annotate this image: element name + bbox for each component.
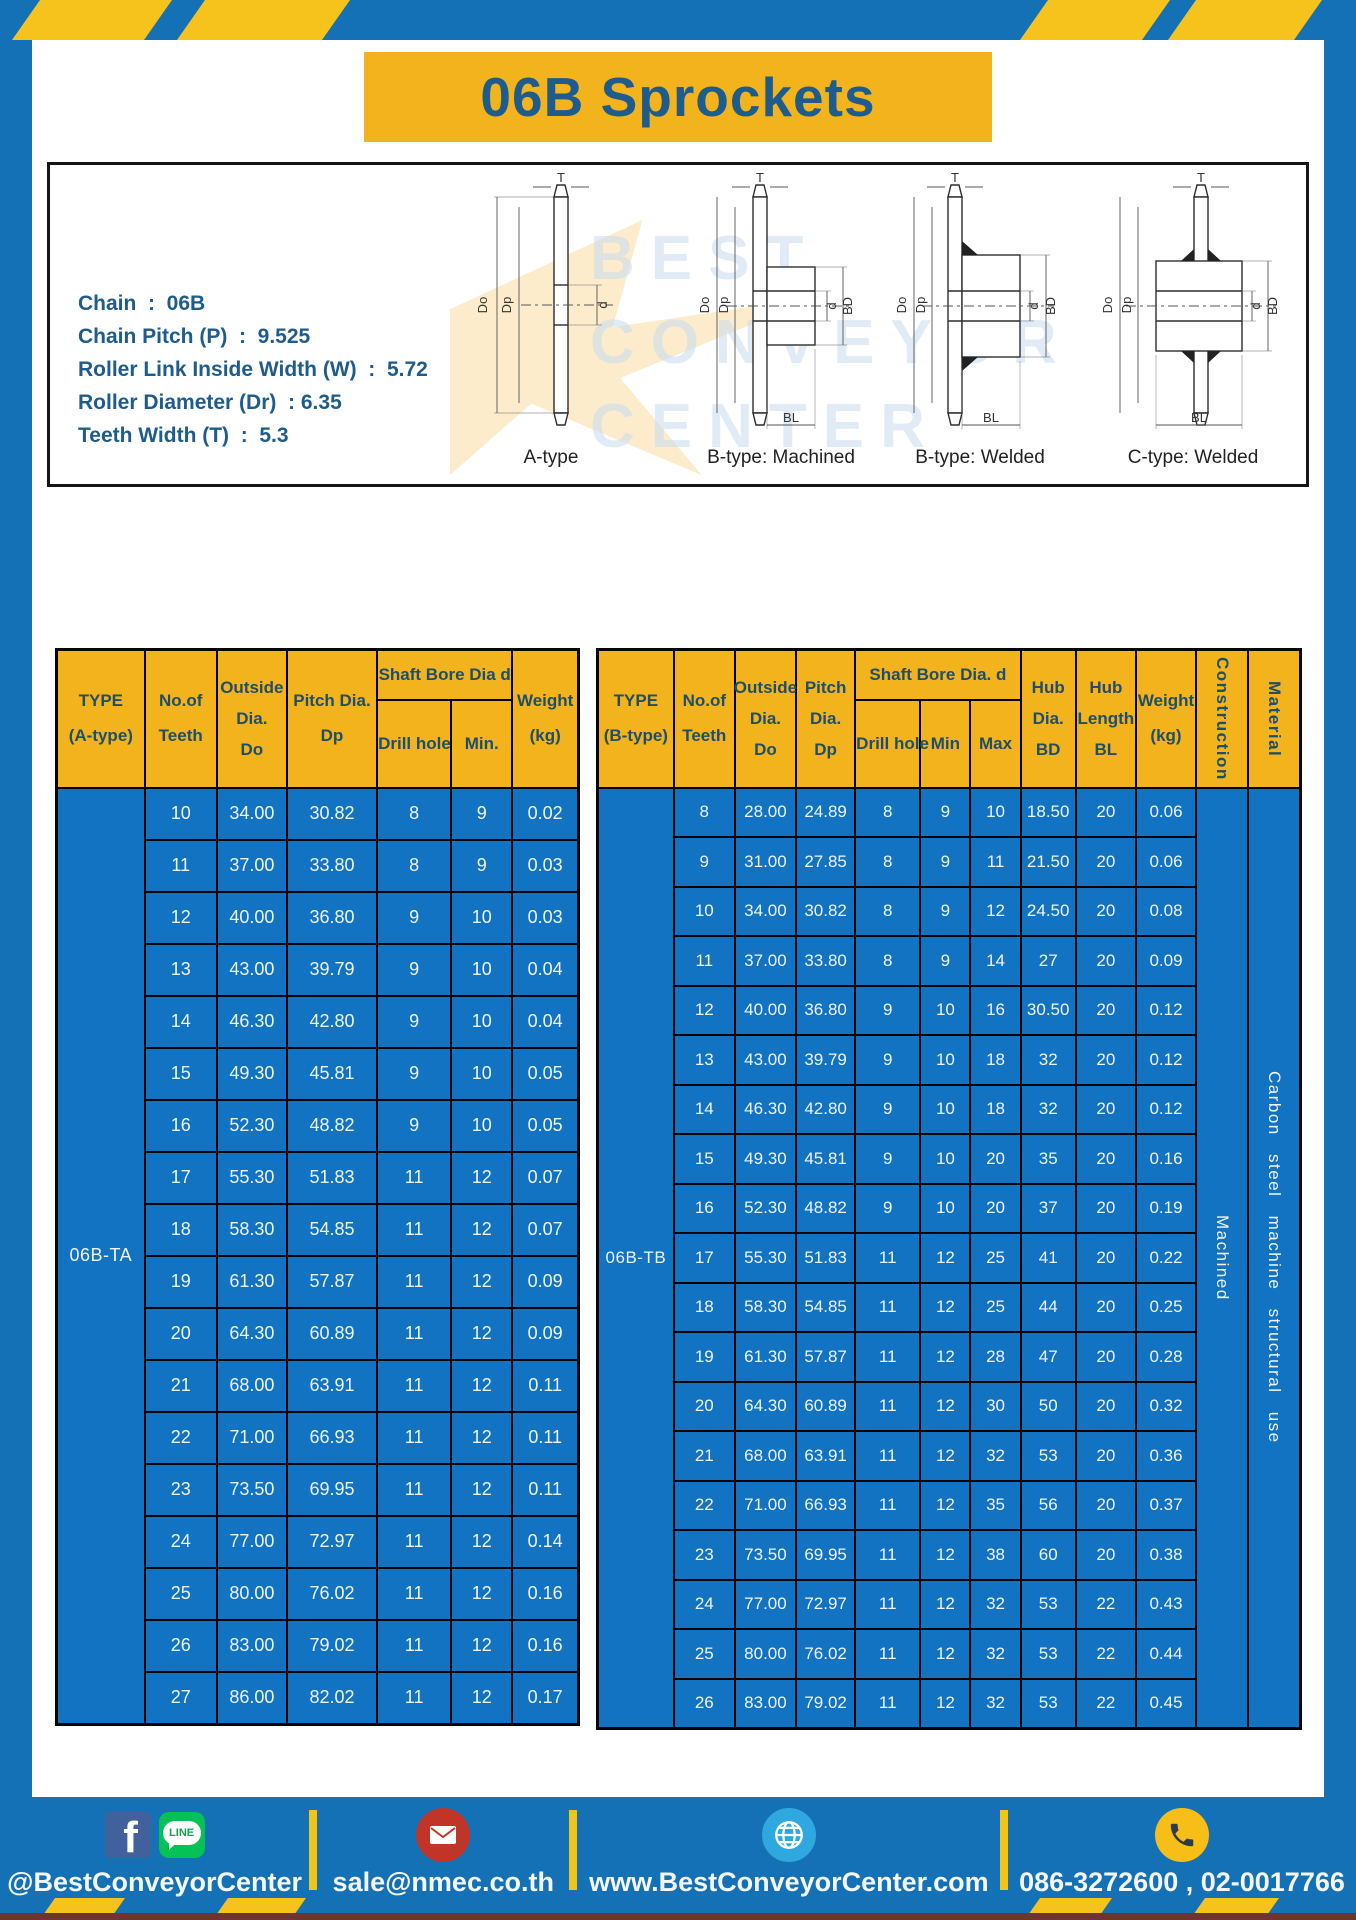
data-cell: 66.93 [287,1412,377,1464]
data-cell: 9 [674,837,735,887]
data-cell: 11 [377,1308,451,1360]
hazard-stripe [177,0,350,40]
data-cell: 9 [377,892,451,944]
data-cell: 10 [451,944,512,996]
table-row: 1961.3057.8711122847200.28 [598,1332,1301,1382]
data-cell: 43.00 [735,1035,796,1085]
table-row: 06B-TB828.0024.89891018.50200.06Machined… [598,788,1301,838]
data-cell: 0.28 [1136,1332,1196,1382]
data-cell: 0.04 [512,944,578,996]
data-cell: 0.05 [512,1100,578,1152]
data-cell: 0.12 [1136,986,1196,1036]
data-cell: 22 [1076,1629,1136,1679]
data-cell: 18.50 [1021,788,1076,838]
data-cell: 0.09 [512,1256,578,1308]
data-cell: 10 [145,788,217,840]
construction-cell: Machined [1196,788,1248,1729]
data-cell: 80.00 [217,1568,287,1620]
data-cell: 20 [1076,986,1136,1036]
data-cell: 49.30 [735,1134,796,1184]
col-header-type: TYPE(B-type) [598,650,674,788]
data-cell: 9 [451,840,512,892]
data-cell: 0.09 [1136,936,1196,986]
data-cell: 19 [674,1332,735,1382]
col-header-weight: Weight(kg) [512,650,578,788]
data-cell: 28 [970,1332,1020,1382]
data-cell: 64.30 [735,1382,796,1432]
data-cell: 20 [1076,1233,1136,1283]
data-cell: 20 [1076,788,1136,838]
data-cell: 10 [920,1184,970,1234]
data-cell: 47 [1021,1332,1076,1382]
dim-label-bl: BL [1191,410,1207,425]
col-header-hub-dia: HubDia.BD [1021,650,1076,788]
dim-label-d: d [824,302,839,309]
website-url[interactable]: www.BestConveyorCenter.com [589,1867,989,1898]
dim-label-dp: Dp [1119,297,1134,314]
data-cell: 20 [1076,1382,1136,1432]
data-cell: 44 [1021,1283,1076,1333]
data-cell: 11 [855,1283,920,1333]
data-cell: 0.07 [512,1152,578,1204]
data-cell: 54.85 [796,1283,855,1333]
data-cell: 0.43 [1136,1580,1196,1630]
table-row: 1343.0039.799101832200.12 [598,1035,1301,1085]
data-cell: 30.82 [796,887,855,937]
data-cell: 20 [1076,1134,1136,1184]
data-cell: 18 [970,1035,1020,1085]
data-cell: 16 [674,1184,735,1234]
data-cell: 43.00 [217,944,287,996]
data-cell: 32 [970,1679,1020,1729]
data-cell: 40.00 [217,892,287,944]
data-cell: 61.30 [217,1256,287,1308]
data-cell: 12 [920,1679,970,1729]
a-type-drawing: T Do Dp d [461,173,641,438]
dim-label-bl: BL [983,410,999,425]
data-cell: 28.00 [735,788,796,838]
data-cell: 22 [1076,1580,1136,1630]
line-bubble: LINE [163,1821,201,1845]
data-cell: 80.00 [735,1629,796,1679]
dim-label-bd: BD [1043,297,1058,315]
data-cell: 60 [1021,1530,1076,1580]
data-cell: 10 [920,986,970,1036]
data-cell: 83.00 [217,1620,287,1672]
hazard-stripe [1194,1898,1279,1914]
b-type-welded-figure: T Do Dp d BD BL B-type: Welded [890,173,1070,469]
material-cell: Carbon steel machine structural use [1248,788,1300,1729]
data-cell: 36.80 [287,892,377,944]
data-cell: 37 [1021,1184,1076,1234]
social-handle[interactable]: @BestConveyorCenter [7,1867,302,1898]
data-cell: 0.36 [1136,1431,1196,1481]
data-cell: 9 [920,887,970,937]
data-cell: 9 [855,1035,920,1085]
data-cell: 20 [1076,1085,1136,1135]
data-cell: 11 [377,1516,451,1568]
data-cell: 16 [970,986,1020,1036]
data-cell: 41 [1021,1233,1076,1283]
data-cell: 0.05 [512,1048,578,1100]
data-cell: 12 [920,1530,970,1580]
data-cell: 24.89 [796,788,855,838]
dim-label-dp: Dp [913,297,928,314]
data-cell: 60.89 [796,1382,855,1432]
data-cell: 53 [1021,1580,1076,1630]
data-cell: 21.50 [1021,837,1076,887]
mail-icon[interactable] [416,1808,470,1862]
data-cell: 13 [674,1035,735,1085]
data-cell: 12 [920,1481,970,1531]
col-header-shaft-bore: Shaft Bore Dia d [377,650,512,700]
col-header-pitch-dia: PitchDia.Dp [796,650,855,788]
data-cell: 18 [145,1204,217,1256]
data-cell: 0.25 [1136,1283,1196,1333]
dim-label-dp: Dp [716,297,731,314]
data-cell: 33.80 [796,936,855,986]
data-cell: 12 [920,1233,970,1283]
data-cell: 0.11 [512,1464,578,1516]
data-cell: 9 [920,936,970,986]
data-cell: 82.02 [287,1672,377,1725]
data-cell: 0.37 [1136,1481,1196,1531]
data-cell: 10 [451,996,512,1048]
data-cell: 25 [674,1629,735,1679]
sprockets-table-b-type: TYPE(B-type) No.ofTeeth OutsideDia.Do Pi… [596,648,1302,1730]
data-cell: 24 [674,1580,735,1630]
data-cell: 52.30 [735,1184,796,1234]
email-address[interactable]: sale@nmec.co.th [333,1867,554,1898]
data-cell: 0.02 [512,788,578,840]
data-cell: 12 [674,986,735,1036]
col-header-outside-dia: OutsideDia.Do [217,650,287,788]
data-cell: 71.00 [217,1412,287,1464]
data-cell: 55.30 [217,1152,287,1204]
col-header-hub-length: HubLengthBL [1076,650,1136,788]
hazard-stripe [1020,0,1170,40]
data-cell: 83.00 [735,1679,796,1729]
data-cell: 0.06 [1136,837,1196,887]
catalog-page: 06B Sprockets BEST CONVEYOR CENTER Chain… [0,0,1356,1920]
data-cell: 72.97 [287,1516,377,1568]
data-cell: 20 [1076,837,1136,887]
footer-divider [1000,1810,1008,1890]
phone-icon[interactable] [1155,1808,1209,1862]
data-cell: 57.87 [287,1256,377,1308]
data-cell: 0.09 [512,1308,578,1360]
data-cell: 20 [1076,1184,1136,1234]
data-cell: 10 [451,1048,512,1100]
data-cell: 10 [451,892,512,944]
drawings-panel: BEST CONVEYOR CENTER Chain : 06B Chain P… [47,162,1309,487]
data-cell: 31.00 [735,837,796,887]
data-cell: 12 [451,1464,512,1516]
data-cell: 86.00 [217,1672,287,1725]
data-cell: 10 [451,1100,512,1152]
c-type-welded-figure: T Do Dp d BD BL C-type: Welded [1098,173,1288,469]
data-cell: 0.38 [1136,1530,1196,1580]
data-cell: 20 [1076,1283,1136,1333]
data-cell: 0.16 [1136,1134,1196,1184]
data-cell: 66.93 [796,1481,855,1531]
data-cell: 25 [145,1568,217,1620]
data-cell: 8 [377,788,451,840]
data-cell: 46.30 [735,1085,796,1135]
data-cell: 0.32 [1136,1382,1196,1432]
data-cell: 34.00 [735,887,796,937]
col-header-drill-hole: Drill hole [855,700,920,788]
data-cell: 26 [145,1620,217,1672]
hazard-stripe [1168,0,1322,40]
data-cell: 25 [970,1233,1020,1283]
table-row: 06B-TA1034.0030.82890.02 [57,788,579,840]
data-cell: 0.11 [512,1412,578,1464]
col-header-pitch-dia: Pitch Dia.Dp [287,650,377,788]
data-cell: 25 [970,1283,1020,1333]
data-cell: 39.79 [796,1035,855,1085]
data-cell: 9 [377,996,451,1048]
data-cell: 9 [377,944,451,996]
table-row: 2580.0076.0211123253220.44 [598,1629,1301,1679]
data-cell: 18 [674,1283,735,1333]
data-cell: 20 [674,1382,735,1432]
data-cell: 17 [674,1233,735,1283]
data-cell: 76.02 [287,1568,377,1620]
table-row: 1549.3045.819102035200.16 [598,1134,1301,1184]
data-cell: 11 [377,1620,451,1672]
data-cell: 9 [920,788,970,838]
table-row: 1034.0030.82891224.50200.08 [598,887,1301,937]
data-cell: 63.91 [287,1360,377,1412]
data-cell: 51.83 [796,1233,855,1283]
data-cell: 34.00 [217,788,287,840]
table-b-body: 06B-TB828.0024.89891018.50200.06Machined… [598,788,1301,1729]
b-type-machined-drawing: T Do Dp d BD BL [691,173,871,438]
data-cell: 22 [145,1412,217,1464]
col-header-drill-hole: Drill hole [377,700,451,788]
table-a-body: 06B-TA1034.0030.82890.021137.0033.80890.… [57,788,579,1725]
data-cell: 11 [855,1332,920,1382]
col-header-weight: Weight(kg) [1136,650,1196,788]
col-header-outside-dia: OutsideDia.Do [735,650,796,788]
data-cell: 32 [970,1629,1020,1679]
data-cell: 30 [970,1382,1020,1432]
data-cell: 15 [674,1134,735,1184]
data-cell: 8 [377,840,451,892]
data-cell: 35 [1021,1134,1076,1184]
data-cell: 8 [855,788,920,838]
data-cell: 14 [970,936,1020,986]
data-cell: 12 [920,1382,970,1432]
spec-line: Roller Link Inside Width (W) : 5.72 [78,353,428,386]
dim-label-d: d [1026,302,1041,309]
footer-divider [309,1810,317,1890]
data-cell: 11 [377,1256,451,1308]
page-title: 06B Sprockets [480,65,875,129]
table-row: 2373.5069.9511123860200.38 [598,1530,1301,1580]
dim-label-dp: Dp [499,297,514,314]
data-cell: 24.50 [1021,887,1076,937]
data-cell: 11 [855,1382,920,1432]
data-cell: 12 [451,1412,512,1464]
data-cell: 20 [1076,1431,1136,1481]
data-cell: 17 [145,1152,217,1204]
data-cell: 14 [145,996,217,1048]
left-border [0,0,32,1920]
data-cell: 54.85 [287,1204,377,1256]
table-row: 1652.3048.829102037200.19 [598,1184,1301,1234]
data-cell: 12 [920,1629,970,1679]
dim-label-t: T [1197,173,1205,185]
spec-line: Teeth Width (T) : 5.3 [78,419,428,452]
data-cell: 11 [855,1431,920,1481]
data-cell: 79.02 [796,1679,855,1729]
data-cell: 72.97 [796,1580,855,1630]
data-cell: 23 [145,1464,217,1516]
data-cell: 14 [674,1085,735,1135]
data-cell: 64.30 [217,1308,287,1360]
data-cell: 53 [1021,1679,1076,1729]
dim-label-t: T [756,173,764,185]
facebook-icon[interactable]: f [105,1812,151,1858]
data-cell: 37.00 [217,840,287,892]
data-cell: 12 [451,1620,512,1672]
data-cell: 12 [451,1308,512,1360]
sprocket-type-cell: 06B-TA [57,788,145,1725]
data-cell: 36.80 [796,986,855,1036]
data-cell: 20 [1076,887,1136,937]
data-cell: 13 [145,944,217,996]
table-row: 2477.0072.9711123253220.43 [598,1580,1301,1630]
chain-specs: Chain : 06B Chain Pitch (P) : 9.525 Roll… [78,287,428,452]
globe-icon[interactable] [762,1808,816,1862]
data-cell: 57.87 [796,1332,855,1382]
data-cell: 45.81 [287,1048,377,1100]
data-cell: 0.12 [1136,1085,1196,1135]
data-cell: 8 [855,887,920,937]
data-cell: 9 [377,1100,451,1152]
bottom-hazard-strip [0,1898,1356,1914]
data-cell: 53 [1021,1431,1076,1481]
data-cell: 42.80 [796,1085,855,1135]
data-cell: 51.83 [287,1152,377,1204]
data-cell: 12 [451,1360,512,1412]
data-cell: 0.22 [1136,1233,1196,1283]
data-cell: 27 [145,1672,217,1725]
data-cell: 49.30 [217,1048,287,1100]
sprockets-table-a-type: TYPE(A-type) No.ofTeeth OutsideDia.Do Pi… [55,648,580,1726]
facebook-glyph: f [123,1818,138,1858]
dim-label-bl: BL [783,410,799,425]
data-cell: 32 [1021,1085,1076,1135]
data-cell: 10 [920,1085,970,1135]
dim-label-do: Do [697,297,712,314]
data-cell: 50 [1021,1382,1076,1432]
data-cell: 11 [855,1233,920,1283]
data-cell: 11 [377,1568,451,1620]
data-cell: 9 [855,1085,920,1135]
spec-line: Roller Diameter (Dr) : 6.35 [78,386,428,419]
table-row: 2683.0079.0211123253220.45 [598,1679,1301,1729]
data-cell: 32 [1021,1035,1076,1085]
data-cell: 11 [674,936,735,986]
data-cell: 12 [145,892,217,944]
data-cell: 68.00 [735,1431,796,1481]
col-header-min: Min. [451,700,512,788]
data-cell: 18 [970,1085,1020,1135]
page-title-banner: 06B Sprockets [364,52,992,142]
data-cell: 35 [970,1481,1020,1531]
data-cell: 56 [1021,1481,1076,1531]
data-cell: 8 [855,837,920,887]
table-row: 2064.3060.8911123050200.32 [598,1382,1301,1432]
dim-label-d: d [595,301,610,308]
col-header-construction: Construction [1196,650,1248,788]
top-hazard-strip [0,0,1356,40]
data-cell: 20 [970,1184,1020,1234]
data-cell: 9 [451,788,512,840]
spec-line: Chain Pitch (P) : 9.525 [78,320,428,353]
hazard-stripe [44,1898,125,1914]
data-cell: 52.30 [217,1100,287,1152]
data-cell: 11 [855,1481,920,1531]
data-cell: 0.03 [512,892,578,944]
table-row: 2271.0066.9311123556200.37 [598,1481,1301,1531]
data-cell: 11 [855,1679,920,1729]
table-row: 2168.0063.9111123253200.36 [598,1431,1301,1481]
footer-divider [569,1810,577,1890]
data-cell: 0.08 [1136,887,1196,937]
data-cell: 8 [855,936,920,986]
data-cell: 24 [145,1516,217,1568]
data-cell: 12 [920,1431,970,1481]
table-row: 1240.0036.809101630.50200.12 [598,986,1301,1036]
data-cell: 12 [970,887,1020,937]
data-cell: 12 [451,1672,512,1725]
drawing-caption: B-type: Welded [890,447,1070,469]
table-row: 1858.3054.8511122544200.25 [598,1283,1301,1333]
dim-label-do: Do [1100,297,1115,314]
data-cell: 58.30 [217,1204,287,1256]
data-cell: 27 [1021,936,1076,986]
a-type-figure: T Do Dp d A-type [461,173,641,469]
phone-numbers[interactable]: 086-3272600 , 02-0017766 [1019,1867,1345,1898]
data-cell: 0.16 [512,1568,578,1620]
data-cell: 10 [674,887,735,937]
dim-label-bd: BD [1265,297,1280,315]
data-cell: 11 [377,1204,451,1256]
data-cell: 55.30 [735,1233,796,1283]
dim-label-do: Do [475,297,490,314]
data-cell: 42.80 [287,996,377,1048]
col-header-material: Material [1248,650,1300,788]
data-cell: 9 [920,837,970,887]
drawing-caption: A-type [461,447,641,469]
spec-line: Chain : 06B [78,287,428,320]
data-cell: 12 [920,1580,970,1630]
line-icon[interactable]: LINE [159,1812,205,1858]
data-cell: 71.00 [735,1481,796,1531]
drawing-caption: C-type: Welded [1098,447,1288,469]
data-cell: 20 [1076,1035,1136,1085]
dim-label-t: T [557,173,565,185]
data-cell: 0.04 [512,996,578,1048]
data-cell: 38 [970,1530,1020,1580]
data-cell: 9 [855,1134,920,1184]
data-cell: 8 [674,788,735,838]
data-cell: 0.17 [512,1672,578,1725]
